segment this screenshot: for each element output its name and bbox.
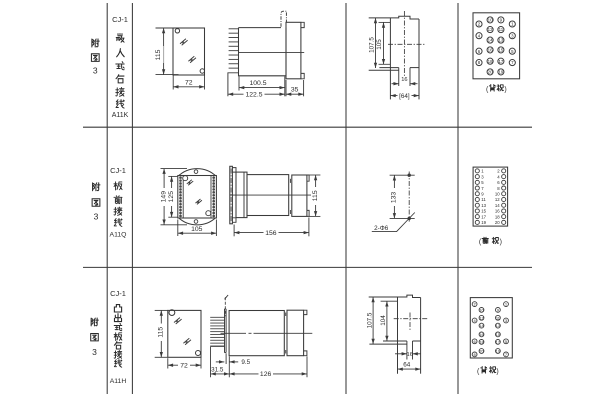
svg-text:17: 17	[481, 214, 486, 219]
svg-text:7: 7	[481, 186, 484, 191]
svg-text:122.5: 122.5	[245, 92, 262, 99]
svg-text:(: (	[486, 86, 489, 93]
svg-text:12: 12	[495, 197, 500, 202]
svg-text:15: 15	[498, 48, 503, 53]
svg-text:(: (	[479, 239, 482, 246]
svg-text:10: 10	[479, 307, 484, 312]
svg-text:125: 125	[168, 191, 175, 203]
svg-text:A11Q: A11Q	[110, 231, 127, 238]
svg-text:8: 8	[497, 186, 500, 191]
svg-text:9.5: 9.5	[241, 359, 250, 366]
svg-text:3: 3	[481, 174, 484, 179]
svg-text:CJ-1: CJ-1	[110, 166, 126, 175]
svg-text:20: 20	[495, 220, 500, 225]
svg-text:104: 104	[380, 315, 387, 326]
svg-text:CJ-1: CJ-1	[112, 15, 128, 24]
svg-text:105: 105	[376, 39, 383, 50]
svg-text:5: 5	[481, 180, 484, 185]
svg-text:2: 2	[478, 22, 481, 27]
svg-text:CJ-1: CJ-1	[110, 289, 126, 298]
svg-text:11: 11	[481, 197, 486, 202]
svg-text:4: 4	[497, 174, 500, 179]
svg-text:12: 12	[488, 27, 493, 32]
svg-text:15: 15	[496, 332, 501, 337]
svg-text:15: 15	[481, 209, 486, 214]
svg-text:14: 14	[479, 323, 484, 328]
svg-text:17: 17	[498, 59, 503, 64]
svg-text:72: 72	[185, 79, 193, 86]
svg-text:115: 115	[312, 190, 319, 201]
svg-text:A11H: A11H	[110, 378, 127, 385]
svg-text:2-Φ6: 2-Φ6	[374, 225, 389, 232]
svg-text:6: 6	[478, 49, 481, 54]
svg-text:19: 19	[481, 220, 486, 225]
svg-text:3: 3	[511, 33, 514, 38]
svg-text:19: 19	[498, 70, 503, 75]
svg-text:9: 9	[481, 191, 484, 196]
svg-text:[64]: [64]	[399, 93, 410, 100]
svg-text:133: 133	[391, 192, 398, 204]
svg-text:9: 9	[500, 18, 503, 23]
svg-text:20: 20	[488, 70, 493, 75]
svg-text:35: 35	[291, 86, 299, 93]
svg-text:10: 10	[495, 191, 500, 196]
svg-text:14: 14	[495, 203, 500, 208]
svg-text:18: 18	[495, 214, 500, 219]
svg-text:31.5: 31.5	[211, 366, 224, 373]
svg-text:18: 18	[488, 59, 493, 64]
svg-text:149: 149	[160, 191, 167, 203]
svg-text:115: 115	[158, 327, 165, 338]
svg-text:4: 4	[478, 33, 481, 38]
svg-text:13: 13	[481, 203, 486, 208]
svg-text:16: 16	[407, 352, 413, 358]
svg-text:16: 16	[479, 332, 484, 337]
svg-text:): )	[496, 368, 498, 375]
svg-text:13: 13	[496, 323, 501, 328]
svg-text:6: 6	[497, 180, 500, 185]
svg-text:100.5: 100.5	[249, 80, 266, 87]
svg-text:(: (	[477, 368, 480, 375]
svg-text:7: 7	[511, 60, 514, 65]
svg-text:1: 1	[481, 169, 484, 174]
svg-text:115: 115	[155, 49, 162, 60]
svg-text:19: 19	[496, 349, 501, 354]
svg-text:20: 20	[479, 349, 484, 354]
svg-text:2: 2	[497, 169, 500, 174]
svg-text:156: 156	[265, 230, 277, 237]
svg-text:): )	[500, 239, 502, 246]
svg-text:1: 1	[511, 22, 514, 27]
svg-text:64: 64	[403, 362, 411, 369]
svg-text:A11K: A11K	[112, 112, 129, 119]
svg-text:3: 3	[92, 347, 97, 357]
svg-text:3: 3	[94, 212, 99, 222]
svg-text:105: 105	[191, 226, 203, 233]
svg-text:72: 72	[180, 362, 188, 369]
svg-text:16: 16	[495, 209, 500, 214]
svg-text:17: 17	[496, 339, 501, 344]
svg-text:16: 16	[488, 48, 493, 53]
svg-text:107.5: 107.5	[368, 37, 375, 53]
svg-text:13: 13	[498, 38, 503, 43]
svg-text:3: 3	[93, 66, 98, 76]
svg-text:126: 126	[260, 371, 272, 378]
svg-text:): )	[504, 86, 506, 93]
svg-text:8: 8	[478, 60, 481, 65]
svg-text:107.5: 107.5	[366, 312, 373, 328]
svg-text:5: 5	[511, 49, 514, 54]
svg-text:11: 11	[499, 27, 504, 32]
svg-text:18: 18	[479, 339, 484, 344]
svg-text:10: 10	[488, 18, 493, 23]
svg-text:16: 16	[401, 77, 407, 83]
svg-text:14: 14	[488, 38, 493, 43]
svg-text:12: 12	[479, 315, 484, 320]
